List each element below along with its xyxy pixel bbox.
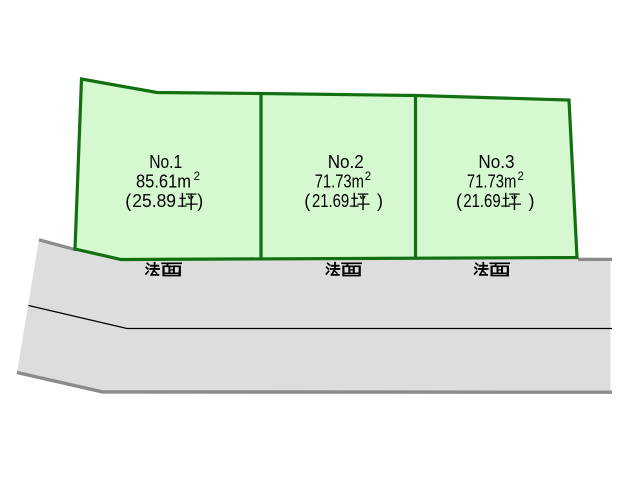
svg-text:2: 2	[194, 171, 200, 183]
svg-text:2: 2	[518, 171, 524, 183]
svg-text:): )	[197, 191, 203, 211]
svg-text:No.1: No.1	[149, 152, 182, 172]
svg-text:): )	[377, 191, 383, 211]
svg-text:(: (	[125, 191, 131, 211]
svg-text:21.69: 21.69	[312, 191, 349, 211]
svg-text:25.89: 25.89	[132, 191, 176, 211]
svg-text:71.73m: 71.73m	[315, 172, 364, 192]
svg-text:): )	[529, 191, 535, 211]
svg-text:85.61m: 85.61m	[136, 172, 191, 192]
svg-text:71.73m: 71.73m	[467, 172, 516, 192]
svg-text:No.3: No.3	[478, 152, 514, 172]
svg-text:No.2: No.2	[328, 152, 364, 172]
svg-text:(: (	[304, 191, 310, 211]
svg-text:2: 2	[365, 171, 371, 183]
svg-text:21.69: 21.69	[463, 191, 500, 211]
svg-text:(: (	[456, 191, 462, 211]
